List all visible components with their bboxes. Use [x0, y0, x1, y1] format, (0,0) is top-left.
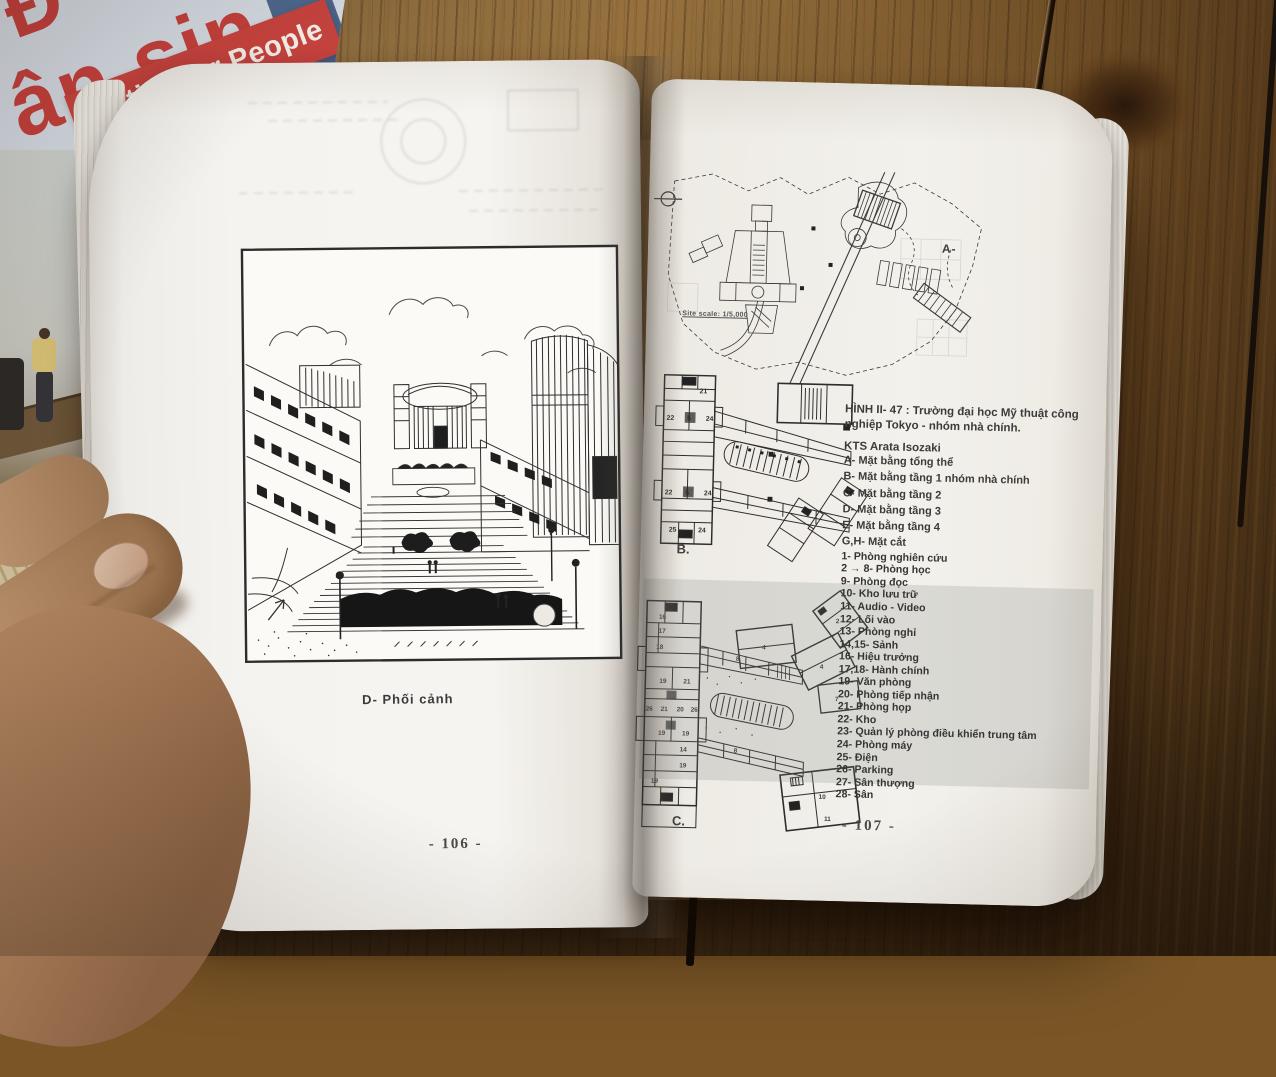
room-number: 24 [698, 527, 706, 534]
room-number: 25 [669, 527, 677, 534]
figure-legend: HÌNH II- 47 : Trường đại học Mỹ thuật cô… [835, 402, 1105, 807]
room-number: 24 [704, 490, 712, 497]
room-number: 22 [665, 489, 673, 496]
room-number: 24 [706, 416, 714, 423]
perspective-figure [240, 244, 622, 663]
bleed-grid [666, 233, 969, 356]
room-number: 10 [818, 794, 826, 801]
site-plan-figure [648, 163, 993, 391]
cover-photo-person-head [39, 328, 50, 339]
plan-c-label: C. [672, 813, 685, 828]
north-arrow-icon [654, 192, 682, 207]
plan-b-top-block [777, 383, 853, 430]
plan-b-comb-corridor [722, 439, 812, 484]
road [790, 170, 895, 386]
legend-caption: HÌNH II- 47 : Trường đại học Mỹ thuật cô… [844, 402, 1105, 437]
gym-cluster [841, 181, 908, 249]
figure-caption: D- Phối cảnh [362, 690, 532, 707]
room-number: 5 [685, 490, 689, 497]
plan-b-upper-wing [714, 411, 852, 465]
plan-b-figure: 21 22 5 24 22 5 24 25 24 [645, 367, 861, 612]
page-number-right: - 107 - [804, 816, 934, 836]
right-page: A- Site scale: 1/5,000 [632, 78, 1114, 907]
number-legend-list: 1- Phòng nghiên cứu2 → 8- Phòng học9- Ph… [835, 550, 1101, 807]
site-boundary [666, 173, 983, 379]
cover-photo-person [36, 370, 53, 422]
page-bleed-through [208, 69, 630, 253]
cover-photo-person [32, 338, 56, 372]
main-building-cluster [687, 203, 798, 358]
page-number-left: - 106 - [396, 835, 516, 853]
room-number: 5 [687, 415, 691, 422]
letter-legend-list: A- Mặt bằng tổng thểB- Mặt bằng tầng 1 n… [842, 452, 1104, 556]
room-number: 21 [700, 388, 708, 395]
parking-rows [876, 260, 973, 332]
photo-open-architecture-book: { "background": { "cover_book": { "title… [0, 0, 1276, 956]
site-plan-label: A- [942, 242, 957, 256]
plan-b-detached-1 [768, 498, 824, 562]
cover-photo-person [0, 358, 24, 430]
plan-b-label: B. [676, 541, 689, 556]
round-bush [533, 604, 555, 626]
room-number: 22 [667, 415, 675, 422]
